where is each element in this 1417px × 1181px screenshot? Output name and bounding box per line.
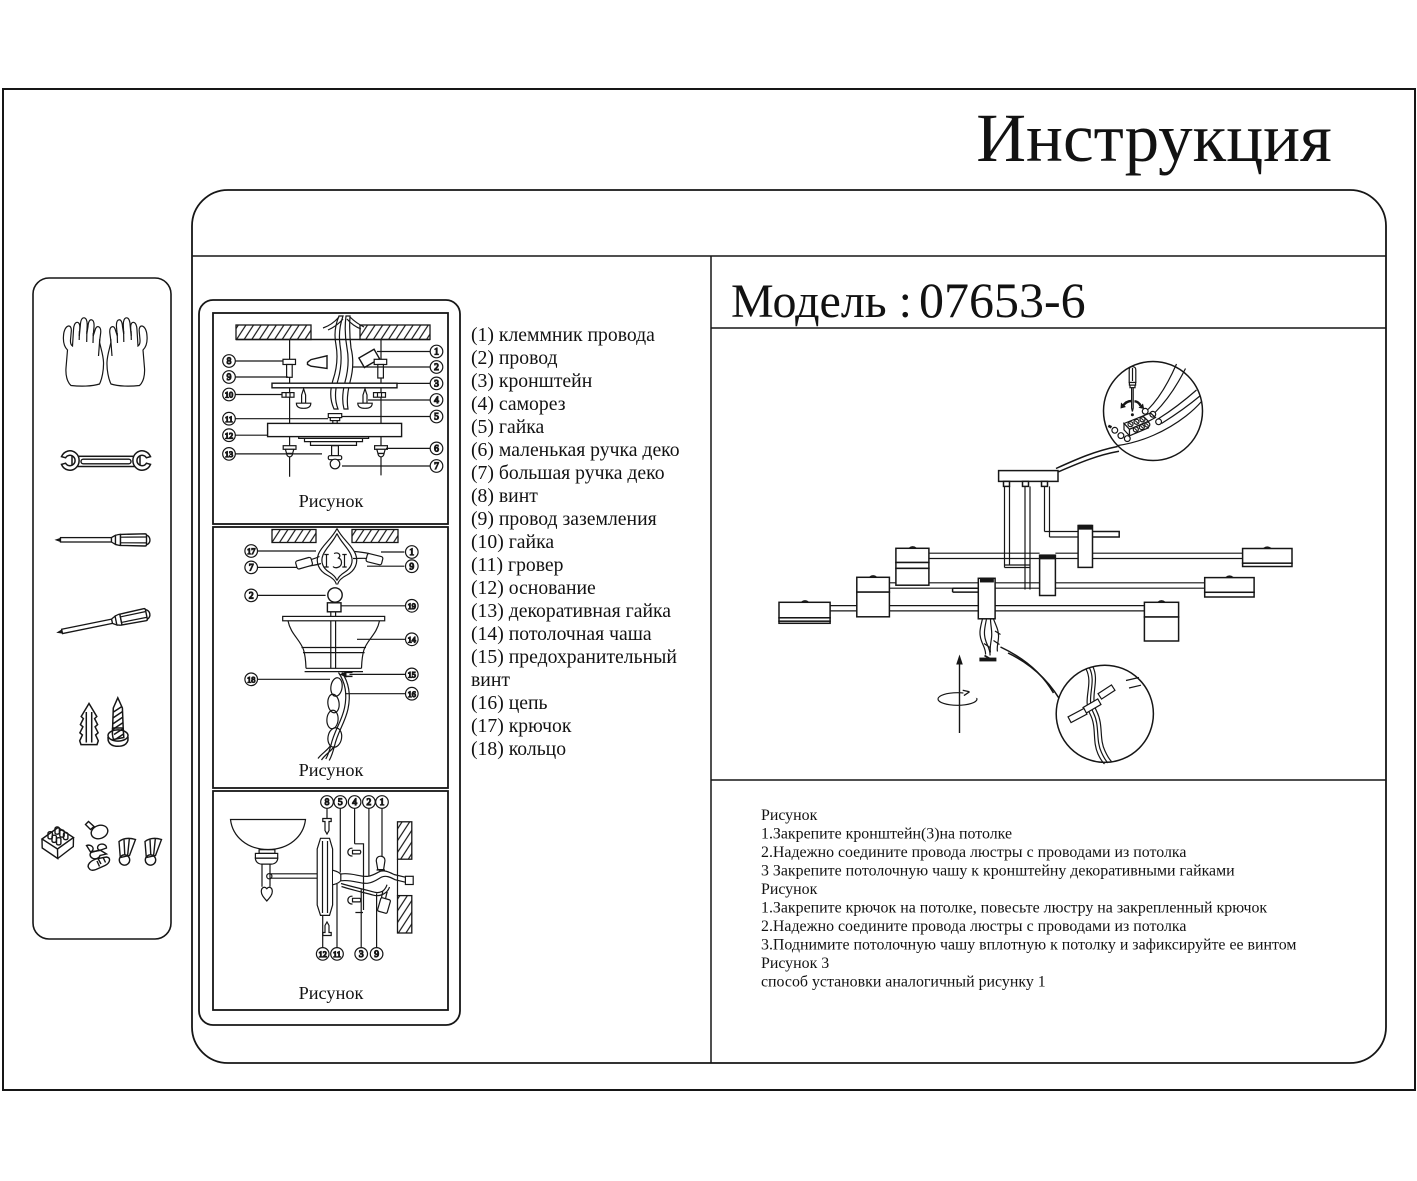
svg-text:Рисунок: Рисунок: [761, 881, 818, 898]
svg-text:14: 14: [408, 635, 416, 644]
svg-text:Рисунок 3: Рисунок 3: [761, 955, 829, 972]
svg-text:(18) кольцо: (18) кольцо: [471, 738, 566, 760]
svg-text:5: 5: [434, 413, 439, 423]
svg-text:винт: винт: [471, 669, 510, 691]
svg-text:1: 1: [409, 548, 414, 558]
svg-text:19: 19: [408, 602, 416, 611]
svg-text:5: 5: [338, 798, 343, 808]
svg-text:1: 1: [380, 798, 385, 808]
svg-text:Инструкция: Инструкция: [976, 100, 1332, 176]
svg-text:(10) гайка: (10) гайка: [471, 531, 554, 553]
svg-text:1.Закрепите кронштейн(3)на пот: 1.Закрепите кронштейн(3)на потолке: [761, 826, 1012, 843]
svg-text:3.Поднимите потолочную чашу вп: 3.Поднимите потолочную чашу вплотную к п…: [761, 937, 1296, 954]
svg-text:7: 7: [434, 462, 439, 472]
svg-text:(8) винт: (8) винт: [471, 485, 538, 507]
svg-text:(15) предохранительный: (15) предохранительный: [471, 646, 677, 668]
svg-text:9: 9: [409, 562, 414, 572]
svg-text:(17) крючок: (17) крючок: [471, 715, 572, 737]
svg-text:(6) маленькая ручка деко: (6) маленькая ручка деко: [471, 439, 680, 461]
svg-text:Рисунок: Рисунок: [299, 760, 364, 780]
svg-text:9: 9: [227, 373, 232, 383]
svg-text:7: 7: [249, 564, 254, 574]
svg-text:12: 12: [225, 431, 233, 440]
svg-text:Рисунок: Рисунок: [299, 983, 364, 1003]
svg-text:Рисунок: Рисунок: [761, 807, 818, 824]
svg-text:15: 15: [408, 671, 416, 680]
svg-text:(13) декоративная гайка: (13) декоративная гайка: [471, 600, 671, 622]
svg-text:способ установки аналогичный р: способ установки аналогичный рисунку 1: [761, 974, 1046, 991]
svg-text:07653-6: 07653-6: [919, 272, 1086, 328]
svg-text:16: 16: [408, 690, 416, 699]
svg-text:(14) потолочная чаша: (14) потолочная чаша: [471, 623, 652, 645]
svg-text:(2) провод: (2) провод: [471, 347, 558, 369]
svg-text:3 Закрепите потолочную чашу к: 3 Закрепите потолочную чашу к кронштейну…: [761, 863, 1235, 880]
svg-text:2: 2: [249, 592, 254, 602]
svg-text:9: 9: [374, 950, 379, 960]
svg-text:13: 13: [225, 450, 233, 459]
svg-text:(7) большая ручка деко: (7) большая ручка деко: [471, 462, 665, 484]
svg-text:(1) клеммник провода: (1) клеммник провода: [471, 324, 655, 346]
svg-text:12: 12: [319, 950, 327, 959]
svg-text:1: 1: [434, 348, 439, 358]
svg-text:11: 11: [333, 950, 341, 959]
svg-text:(5) гайка: (5) гайка: [471, 416, 544, 438]
svg-text:2.Надежно соедините провода лю: 2.Надежно соедините провода люстры с про…: [761, 844, 1186, 861]
svg-text:(12) основание: (12) основание: [471, 577, 596, 599]
svg-text:8: 8: [227, 357, 232, 367]
svg-text:2: 2: [367, 798, 372, 808]
svg-text:4: 4: [434, 396, 439, 406]
svg-text:1.Закрепите крючок на потолке,: 1.Закрепите крючок на потолке, повесьте …: [761, 900, 1267, 917]
svg-text:2.Надежно соедините провода лю: 2.Надежно соедините провода люстры с про…: [761, 918, 1186, 935]
svg-text:(9) провод заземления: (9) провод заземления: [471, 508, 657, 530]
svg-text:11: 11: [225, 415, 233, 424]
svg-text:18: 18: [247, 675, 255, 684]
svg-text:(11) гровер: (11) гровер: [471, 554, 564, 576]
svg-text:(16) цепь: (16) цепь: [471, 692, 548, 714]
svg-text:3: 3: [359, 950, 364, 960]
svg-text:(4) саморез: (4) саморез: [471, 393, 566, 415]
svg-text:8: 8: [325, 798, 330, 808]
svg-text:3: 3: [434, 380, 439, 390]
svg-text:(3) кронштейн: (3) кронштейн: [471, 370, 593, 392]
svg-text:Модель :: Модель :: [731, 275, 912, 328]
svg-text:4: 4: [352, 798, 357, 808]
svg-text:2: 2: [434, 363, 439, 373]
svg-text:6: 6: [434, 445, 439, 455]
svg-text:Рисунок: Рисунок: [299, 491, 364, 511]
svg-text:10: 10: [225, 391, 233, 400]
svg-text:17: 17: [247, 547, 255, 556]
